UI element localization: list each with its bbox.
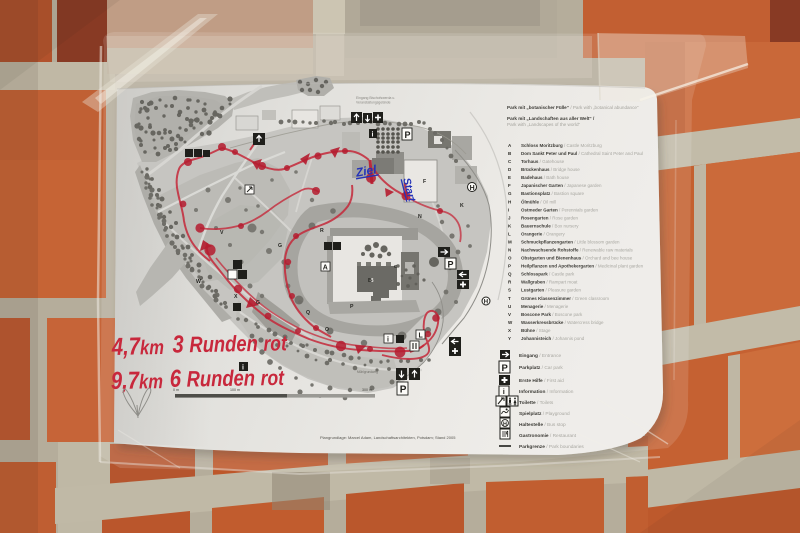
- svg-text:N: N: [418, 214, 422, 220]
- svg-text:Information / Information: Information / Information: [519, 389, 574, 395]
- svg-text:G: G: [278, 243, 282, 249]
- svg-text:P: P: [508, 264, 511, 269]
- svg-text:100 m: 100 m: [230, 388, 240, 392]
- svg-text:F: F: [423, 179, 426, 185]
- svg-text:X: X: [508, 328, 511, 333]
- svg-text:Parkplatz / Car park: Parkplatz / Car park: [519, 365, 563, 371]
- svg-text:Lustgarten / Pleasure garden: Lustgarten / Pleasure garden: [521, 288, 582, 293]
- svg-text:O: O: [325, 327, 329, 333]
- svg-text:Haltestelle / Bus stop: Haltestelle / Bus stop: [519, 422, 566, 428]
- svg-text:G: G: [508, 191, 512, 196]
- svg-text:N: N: [508, 248, 511, 253]
- svg-text:Spielplatz / Playground: Spielplatz / Playground: [519, 411, 570, 417]
- svg-text:T: T: [508, 296, 511, 301]
- svg-text:Johannisteich / Johannis pond: Johannisteich / Johannis pond: [521, 336, 585, 341]
- svg-text:6 Runden rot: 6 Runden rot: [169, 363, 285, 392]
- svg-text:Obstgarten und Bienenhaus / Or: Obstgarten und Bienenhaus / Orchard and …: [521, 256, 633, 261]
- svg-text:F: F: [508, 183, 511, 188]
- svg-text:O: O: [508, 256, 512, 261]
- svg-text:H: H: [508, 199, 511, 204]
- svg-text:Bastionsplatz / Bastion square: Bastionsplatz / Bastion square: [521, 191, 585, 196]
- svg-text:Schlosspark / Castle park: Schlosspark / Castle park: [521, 272, 575, 277]
- svg-text:I: I: [508, 207, 509, 212]
- svg-text:P: P: [400, 385, 407, 396]
- svg-text:c: c: [394, 264, 397, 270]
- svg-text:R: R: [320, 228, 324, 234]
- svg-text:P: P: [350, 304, 354, 310]
- svg-text:Nachwachsende Rohstoffe / Rene: Nachwachsende Rohstoffe / Renewable raw …: [521, 248, 634, 253]
- svg-text:M: M: [508, 240, 512, 245]
- svg-text:Heilpflanzen und Apothekergart: Heilpflanzen und Apothekergarten / Medic…: [521, 264, 644, 269]
- svg-text:K: K: [460, 203, 464, 209]
- svg-text:Q: Q: [306, 310, 310, 316]
- svg-text:Bühne / Stage: Bühne / Stage: [521, 328, 551, 333]
- svg-text:P: P: [405, 130, 411, 140]
- svg-text:H: H: [484, 300, 488, 306]
- svg-text:4,7km: 4,7km: [111, 332, 165, 360]
- svg-text:L: L: [508, 231, 511, 236]
- svg-text:Boscone Park / Boscone park: Boscone Park / Boscone park: [521, 312, 583, 317]
- svg-text:P: P: [502, 363, 509, 374]
- svg-text:Orangerie / Orangery: Orangerie / Orangery: [521, 231, 566, 236]
- svg-text:W: W: [196, 279, 201, 285]
- svg-text:Schmuckpflanzengarten / Little: Schmuckpflanzengarten / Little blossom g…: [521, 240, 620, 245]
- svg-text:i: i: [503, 387, 505, 396]
- svg-text:Q: Q: [508, 272, 512, 277]
- svg-text:P: P: [448, 259, 454, 269]
- svg-text:H: H: [503, 422, 507, 428]
- svg-text:Erste Hilfe / First aid: Erste Hilfe / First aid: [519, 378, 564, 384]
- svg-text:Ölmühle / Oil mill: Ölmühle / Oil mill: [521, 198, 556, 204]
- svg-text:Eingang / Entrance: Eingang / Entrance: [519, 353, 561, 359]
- svg-text:Bauernschule / Box nursery: Bauernschule / Box nursery: [521, 223, 579, 228]
- svg-text:0 m: 0 m: [173, 388, 179, 392]
- svg-text:i: i: [372, 132, 374, 139]
- svg-text:300 m: 300 m: [362, 388, 372, 392]
- svg-text:Torhaus / Gatehouse: Torhaus / Gatehouse: [521, 159, 565, 164]
- svg-text:Y: Y: [508, 336, 511, 341]
- svg-text:E: E: [508, 175, 511, 180]
- svg-text:Grünes Klassenzimmer / Green c: Grünes Klassenzimmer / Green classroom: [521, 296, 609, 301]
- svg-text:Park with „Landscapes of the w: Park with „Landscapes of the world“: [507, 122, 580, 127]
- svg-text:Eingang Bischofswerda u.: Eingang Bischofswerda u.: [356, 96, 395, 100]
- svg-text:Veranstaltungsgelände: Veranstaltungsgelände: [356, 101, 391, 105]
- svg-text:Parkgrenze / Park boundaries: Parkgrenze / Park boundaries: [519, 444, 584, 450]
- svg-text:X: X: [234, 294, 238, 300]
- svg-text:G: G: [256, 300, 260, 306]
- svg-text:Brückenhaus / Bridge house: Brückenhaus / Bridge house: [521, 167, 580, 172]
- svg-text:V: V: [508, 312, 511, 317]
- svg-text:Badehaus / Bath house: Badehaus / Bath house: [521, 175, 570, 180]
- svg-text:Rosengarten / Rose garden: Rosengarten / Rose garden: [521, 215, 579, 220]
- svg-text:Dom Sankt Peter und Paul / Cat: Dom Sankt Peter und Paul / Cathedral Sai…: [521, 151, 643, 156]
- svg-text:9,7km: 9,7km: [111, 366, 164, 394]
- svg-text:U: U: [508, 304, 511, 309]
- svg-text:H: H: [470, 185, 475, 192]
- svg-text:Schloss Moritzburg / Castle Mo: Schloss Moritzburg / Castle Moritzburg: [521, 143, 602, 148]
- svg-text:Park mit „botanischer Fülle“ /: Park mit „botanischer Fülle“ / Park with…: [507, 105, 639, 110]
- svg-text:Mühlgrundweg: Mühlgrundweg: [357, 370, 378, 374]
- svg-text:Menagerie / Menagerie: Menagerie / Menagerie: [521, 304, 569, 309]
- svg-text:i: i: [387, 337, 389, 344]
- svg-text:Plangrundlage: Marcel Adam, La: Plangrundlage: Marcel Adam, Landschaftsa…: [320, 435, 456, 440]
- svg-text:S: S: [508, 288, 511, 293]
- svg-text:A: A: [323, 265, 328, 272]
- svg-text:V: V: [220, 230, 224, 236]
- svg-text:Gastronomie / Restaurant: Gastronomie / Restaurant: [519, 433, 577, 439]
- svg-text:Wallgraben / Rampart moat: Wallgraben / Rampart moat: [521, 280, 578, 285]
- svg-text:Wasserkressbrücke / Watercress: Wasserkressbrücke / Watercress bridge: [521, 320, 604, 325]
- svg-text:Ostmeder Garten / Perennials g: Ostmeder Garten / Perennials garden: [521, 207, 599, 212]
- svg-text:B: B: [368, 278, 372, 284]
- svg-text:Park mit „Landschaften aus all: Park mit „Landschaften aus aller Welt“ /: [507, 116, 595, 121]
- svg-text:3 Runden rot: 3 Runden rot: [172, 328, 288, 358]
- svg-text:L: L: [419, 333, 424, 340]
- svg-text:Japanischer Garten / Japanese: Japanischer Garten / Japanese garden: [521, 183, 602, 188]
- svg-text:Toilette / Toilets: Toilette / Toilets: [519, 400, 554, 406]
